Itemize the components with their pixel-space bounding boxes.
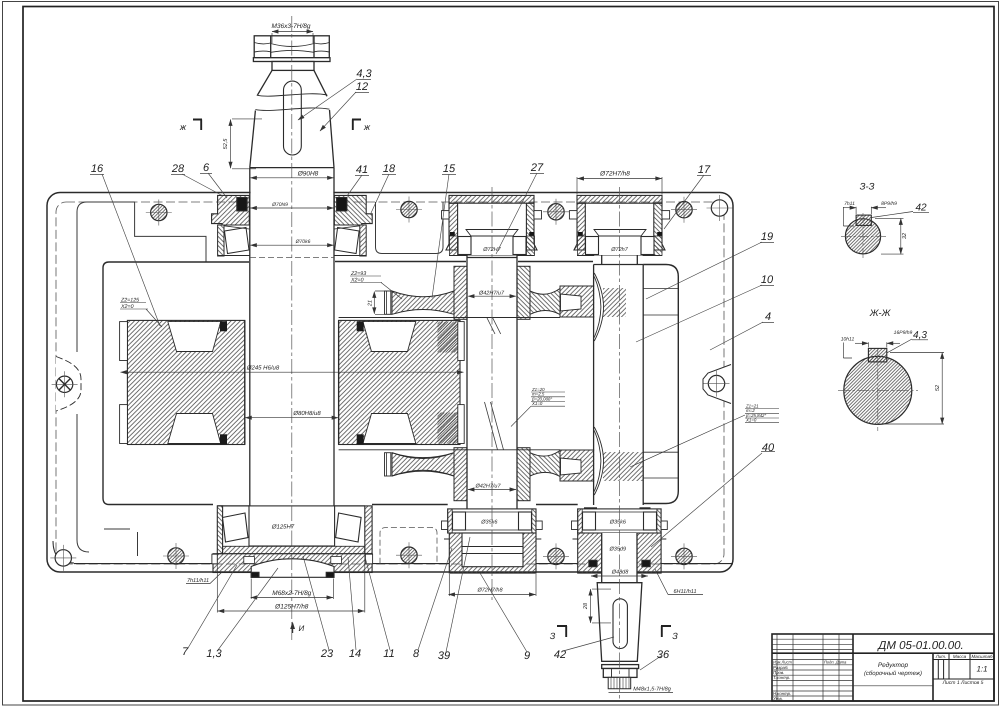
svg-text:Ø72Н7/h8: Ø72Н7/h8 [599,171,630,178]
svg-text:ж: ж [363,122,371,132]
svg-text:1:1: 1:1 [976,665,987,674]
svg-text:40: 40 [762,442,775,454]
svg-text:27: 27 [530,162,544,174]
svg-text:ДМ 05-01.00.00.: ДМ 05-01.00.00. [876,640,963,652]
svg-text:41: 41 [356,164,368,176]
svg-text:14: 14 [349,648,361,660]
svg-text:Ø70k6: Ø70k6 [295,239,311,245]
svg-text:42: 42 [915,203,927,214]
svg-text:З: З [550,631,556,641]
svg-text:12: 12 [356,81,368,93]
svg-text:Масса: Масса [953,654,967,659]
svg-text:52,5: 52,5 [223,138,229,150]
svg-text:11: 11 [383,648,394,660]
svg-text:10: 10 [761,274,774,286]
svg-text:Редуктор: Редуктор [878,662,909,669]
svg-text:Ø42Н7/u7: Ø42Н7/u7 [474,484,501,490]
svg-text:Лист 1 Листов 5: Лист 1 Листов 5 [942,680,984,686]
svg-text:Масштаб: Масштаб [971,654,992,659]
svg-text:(сборочный чертеж): (сборочный чертеж) [864,670,922,677]
svg-text:18: 18 [383,163,396,175]
svg-text:Лит.: Лит. [935,654,947,659]
svg-text:4,3: 4,3 [356,68,372,80]
svg-text:Изм.Лист: Изм.Лист [773,660,792,665]
svg-text:6: 6 [203,162,210,174]
svg-text:Ø125Н7/h8: Ø125Н7/h8 [274,604,309,611]
svg-text:И: И [299,624,305,633]
svg-text:52: 52 [935,385,941,391]
svg-text:Ø90Н8: Ø90Н8 [297,171,319,178]
svg-text:Ø35d9: Ø35d9 [609,547,627,553]
svg-text:М36х3-7Н/8g: М36х3-7Н/8g [271,23,310,30]
svg-text:1,3: 1,3 [206,648,222,660]
svg-text:42: 42 [554,649,566,661]
svg-text:7h11/h11: 7h11/h11 [187,578,209,584]
svg-text:4,3: 4,3 [913,330,927,341]
svg-text:Ø35k6: Ø35k6 [480,520,498,526]
svg-text:X2=0: X2=0 [350,277,364,283]
svg-text:21: 21 [367,300,373,307]
svg-text:15: 15 [443,163,456,175]
svg-text:23: 23 [320,648,334,660]
svg-text:19: 19 [761,231,773,243]
svg-text:М48х1,5-7Н/8g: М48х1,5-7Н/8g [633,687,672,693]
svg-text:39: 39 [438,650,450,662]
svg-text:8: 8 [413,648,420,660]
svg-text:З: З [672,631,678,641]
svg-text:Ø42Н7/u7: Ø42Н7/u7 [478,290,505,296]
svg-text:10h11: 10h11 [841,337,855,343]
svg-text:28: 28 [171,163,185,175]
svg-text:16: 16 [91,163,104,175]
svg-text:Т.контр.: Т.контр. [773,675,790,680]
svg-text:6Н11/h11: 6Н11/h11 [673,589,696,595]
svg-text:7h11: 7h11 [844,201,855,207]
svg-text:Ø80Н8/u8: Ø80Н8/u8 [292,410,321,417]
svg-text:Ø70N9: Ø70N9 [271,202,288,208]
svg-text:ж: ж [179,122,187,132]
svg-text:17: 17 [698,164,711,176]
svg-text:Ø35k6: Ø35k6 [609,520,627,526]
svg-text:Ø245 Н6/u8: Ø245 Н6/u8 [246,365,280,372]
svg-text:4: 4 [765,311,771,323]
svg-text:Ø72Н7: Ø72Н7 [482,247,501,253]
svg-text:32: 32 [902,233,908,239]
svg-text:7: 7 [182,646,189,658]
svg-text:Ж-Ж: Ж-Ж [869,308,892,319]
svg-text:М68х2-7Н/8g: М68х2-7Н/8g [272,590,311,597]
svg-text:9: 9 [524,650,530,662]
svg-text:Ø48d8: Ø48d8 [611,570,629,576]
svg-text:Утв.: Утв. [773,696,783,701]
svg-text:Ø125Н7: Ø125Н7 [271,524,295,531]
svg-text:16Р9/h9: 16Р9/h9 [894,330,913,336]
svg-text:28: 28 [583,602,589,610]
svg-text:X1=0: X1=0 [531,401,543,406]
svg-text:8Р9/h9: 8Р9/h9 [881,201,897,207]
svg-text:36: 36 [657,649,670,661]
svg-text:Z2=125: Z2=125 [120,297,139,303]
svg-text:Z2=93: Z2=93 [350,271,366,277]
svg-text:Ø72Н7/h8: Ø72Н7/h8 [476,588,503,594]
svg-text:З-З: З-З [860,182,875,193]
svg-text:Ø72h7: Ø72h7 [610,247,628,253]
svg-text:Подп. Дата: Подп. Дата [824,660,847,665]
svg-text:X1=0: X1=0 [745,418,757,423]
svg-text:X2=0: X2=0 [120,304,134,310]
